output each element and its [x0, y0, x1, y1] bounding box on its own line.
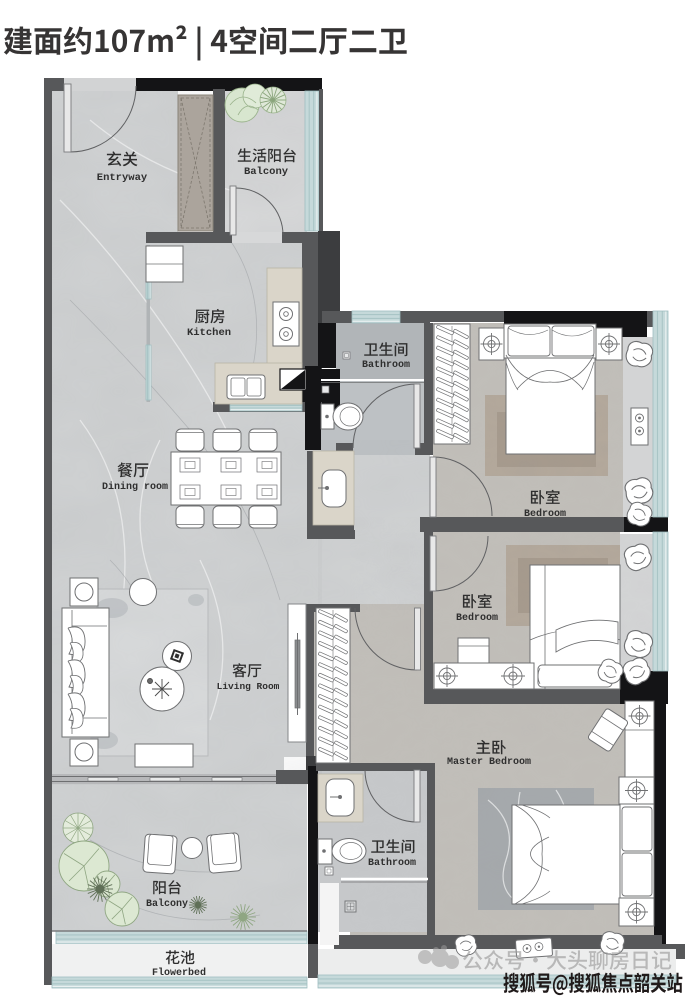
svg-text:Balcony: Balcony [146, 898, 188, 910]
svg-text:Dining room: Dining room [102, 481, 168, 493]
svg-text:Master Bedroom: Master Bedroom [447, 756, 531, 768]
svg-text:Bedroom: Bedroom [524, 508, 566, 520]
svg-text:Balcony: Balcony [244, 166, 289, 178]
svg-text:Flowerbed: Flowerbed [152, 967, 206, 979]
svg-text:Kitchen: Kitchen [187, 327, 231, 339]
svg-text:Bathroom: Bathroom [368, 857, 416, 869]
svg-text:Bedroom: Bedroom [456, 612, 498, 624]
svg-text:Bathroom: Bathroom [362, 359, 410, 371]
svg-text:Living Room: Living Room [217, 681, 280, 692]
svg-text:Entryway: Entryway [97, 172, 148, 184]
